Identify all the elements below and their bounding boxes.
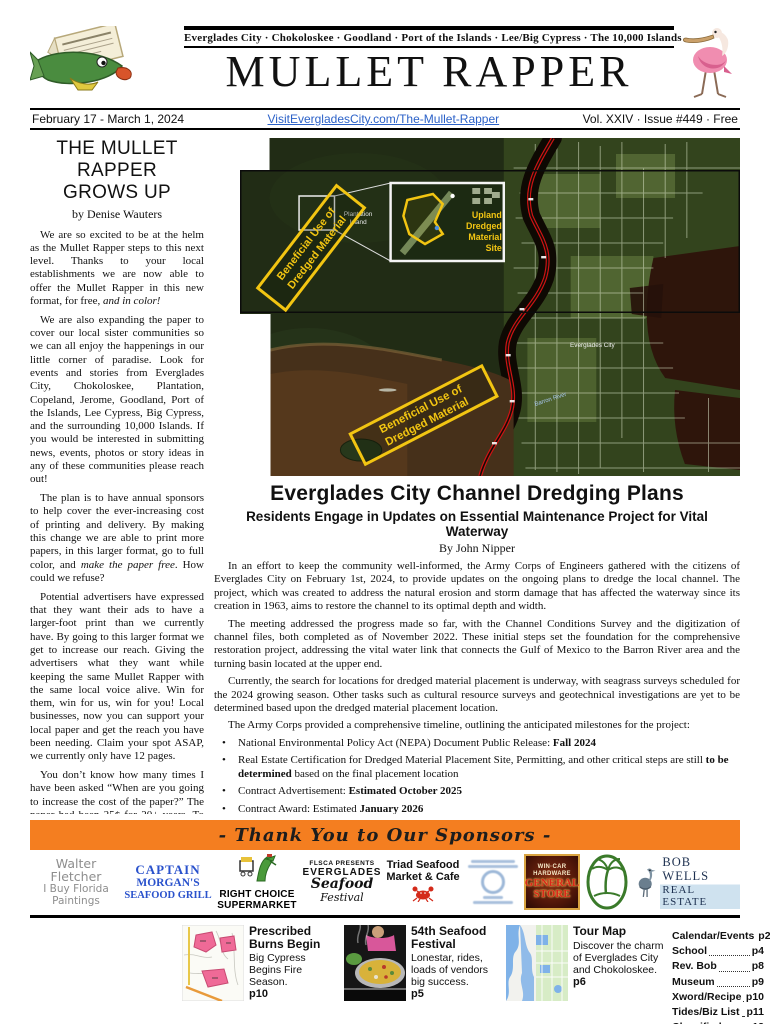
everglades-city-label: Everglades City	[570, 342, 615, 349]
main-byline: By John Nipper	[214, 541, 740, 556]
paragraph: The Army Corps provided a comprehensive …	[214, 719, 740, 732]
sponsor-win-car-general-store: WIN·CAR HARDWARE GENERAL STORE	[524, 854, 580, 910]
paragraph: In an effort to keep the community well-…	[214, 560, 740, 614]
spoonbill-logo	[678, 26, 740, 105]
teaser-page: p5	[411, 988, 499, 1000]
main-article-column: Upland Dredged Material Site Plantation …	[214, 138, 740, 814]
upland-label-2: Dredged	[466, 221, 502, 231]
crab-icon	[410, 884, 436, 902]
main-headline: Everglades City Channel Dredging Plans	[214, 482, 740, 506]
masthead-center: Everglades City · Chokoloskee · Goodland…	[180, 26, 678, 95]
left-article-byline: by Denise Wauters	[30, 207, 204, 222]
left-article-title: THE MULLET RAPPER GROWS UP	[30, 138, 204, 204]
date-range: February 17 - March 1, 2024	[32, 112, 184, 126]
dredging-map-figure: Upland Dredged Material Site Plantation …	[240, 138, 740, 476]
teaser-title: Tour Map	[573, 925, 665, 938]
paragraph: You don’t know how many times I have bee…	[30, 769, 204, 814]
index-item: Calendar/Eventsp2	[672, 929, 764, 944]
paragraph: The plan is to have annual sponsors to h…	[30, 492, 204, 585]
teaser-body: Lonestar, rides, loads of vendors big su…	[411, 952, 499, 988]
index-item: Schoolp4	[672, 944, 764, 959]
timeline-bullet: •National Environmental Policy Act (NEPA…	[222, 737, 740, 750]
paragraph: The meeting addressed the progress made …	[214, 618, 740, 672]
left-article: THE MULLET RAPPER GROWS UP by Denise Wau…	[30, 138, 204, 814]
index-item: Tides/Biz Listp11	[672, 1005, 764, 1020]
teaser-seafood-festival: 54th Seafood Festival Lonestar, rides, l…	[344, 925, 499, 1001]
teaser-prescribed-burns: Prescribed Burns Begin Big Cypress Begin…	[182, 925, 337, 1001]
bullet-dot: •	[222, 737, 238, 750]
communities-strip: Everglades City · Chokoloskee · Goodland…	[184, 26, 674, 48]
teaser-page: p6	[573, 976, 665, 988]
sponsor-bob-wells-real-estate: BOB WELLS REAL ESTATE	[634, 855, 740, 909]
fish-newspaper-logo	[30, 26, 180, 97]
sponsor-glades-realty-logo	[582, 854, 632, 910]
paragraph: We are so excited to be at the helm as t…	[30, 229, 204, 309]
heron-icon	[634, 865, 656, 899]
burns-map-thumbnail	[182, 925, 244, 1001]
timeline-bullet-list: •National Environmental Policy Act (NEPA…	[214, 737, 740, 814]
issue-info: Vol. XXIV · Issue #449 · Free	[583, 112, 738, 126]
teaser-title: Prescribed Burns Begin	[249, 925, 337, 950]
sponsor-banner-text: - Thank You to Our Sponsors -	[219, 825, 552, 846]
index-item: Xword/Recipep10	[672, 990, 764, 1005]
alligator-cart-icon	[237, 853, 277, 885]
sponsor-banner: - Thank You to Our Sponsors -	[30, 820, 740, 850]
sponsor-walter-fletcher: Walter Fletcher I Buy Florida Paintings	[30, 857, 122, 908]
hotel-emblem-icon	[481, 870, 505, 894]
upland-label-1: Upland	[472, 210, 502, 220]
bullet-dot: •	[222, 754, 238, 781]
section-divider	[30, 915, 740, 918]
paragraph: Currently, the search for locations for …	[214, 675, 740, 715]
bullet-dot: •	[222, 803, 238, 815]
upland-label-4: Site	[486, 243, 502, 253]
contents-index: Calendar/Eventsp2 Schoolp4 Rev. Bobp8 Mu…	[672, 929, 764, 1024]
sponsor-triad-seafood: Triad Seafood Market & Cafe	[384, 859, 462, 904]
timeline-bullet: •Contract Award: Estimated January 2026	[222, 803, 740, 815]
sponsor-seafood-festival: FLSCA PRESENTS EVERGLADES Seafood Festiv…	[302, 860, 382, 904]
index-item: Museump9	[672, 975, 764, 990]
teaser-body: Discover the charm of Everglades City an…	[573, 940, 665, 976]
teaser-tour-map: Tour Map Discover the charm of Everglade…	[506, 925, 665, 1001]
festival-photo-thumbnail	[344, 925, 406, 1001]
sponsor-captain-morgans: CAPTAIN MORGAN'S SEAFOOD GRILL	[124, 863, 212, 901]
timeline-bullet: •Real Estate Certification for Dredged M…	[222, 754, 740, 781]
main-subheadline: Residents Engage in Updates on Essential…	[214, 509, 740, 539]
teaser-body: Big Cypress Begins Fire Season.	[249, 952, 337, 988]
paper-title: MULLET RAPPER	[184, 49, 674, 95]
newspaper-front-page: Everglades City · Chokoloskee · Goodland…	[0, 0, 770, 1024]
teaser-title: 54th Seafood Festival	[411, 925, 499, 950]
website-link[interactable]: VisitEvergladesCity.com/The-Mullet-Rappe…	[268, 112, 500, 126]
tour-map-thumbnail	[506, 925, 568, 1001]
index-item: Rev. Bobp8	[672, 959, 764, 974]
teaser-page: p10	[249, 988, 337, 1000]
main-article: Everglades City Channel Dredging Plans R…	[214, 482, 740, 814]
palm-tree-emblem-icon	[584, 854, 630, 910]
index-item: Classifiedsp12	[672, 1020, 764, 1024]
paragraph: We are also expanding the paper to cover…	[30, 314, 204, 487]
timeline-bullet: •Contract Advertisement: Estimated Octob…	[222, 785, 740, 798]
bullet-dot: •	[222, 785, 238, 798]
teaser-row: Prescribed Burns Begin Big Cypress Begin…	[30, 925, 740, 1024]
paragraph: Potential advertisers have expressed tha…	[30, 591, 204, 764]
sponsor-riverside-hotel-logo	[464, 860, 522, 904]
sponsors-row: Walter Fletcher I Buy Florida Paintings …	[30, 851, 740, 913]
masthead: Everglades City · Chokoloskee · Goodland…	[30, 26, 740, 105]
dateline: February 17 - March 1, 2024 VisitEvergla…	[30, 108, 740, 130]
sponsor-right-choice-supermarket: RIGHT CHOICE SUPERMARKET	[214, 853, 300, 912]
upland-label-3: Material	[468, 232, 501, 242]
